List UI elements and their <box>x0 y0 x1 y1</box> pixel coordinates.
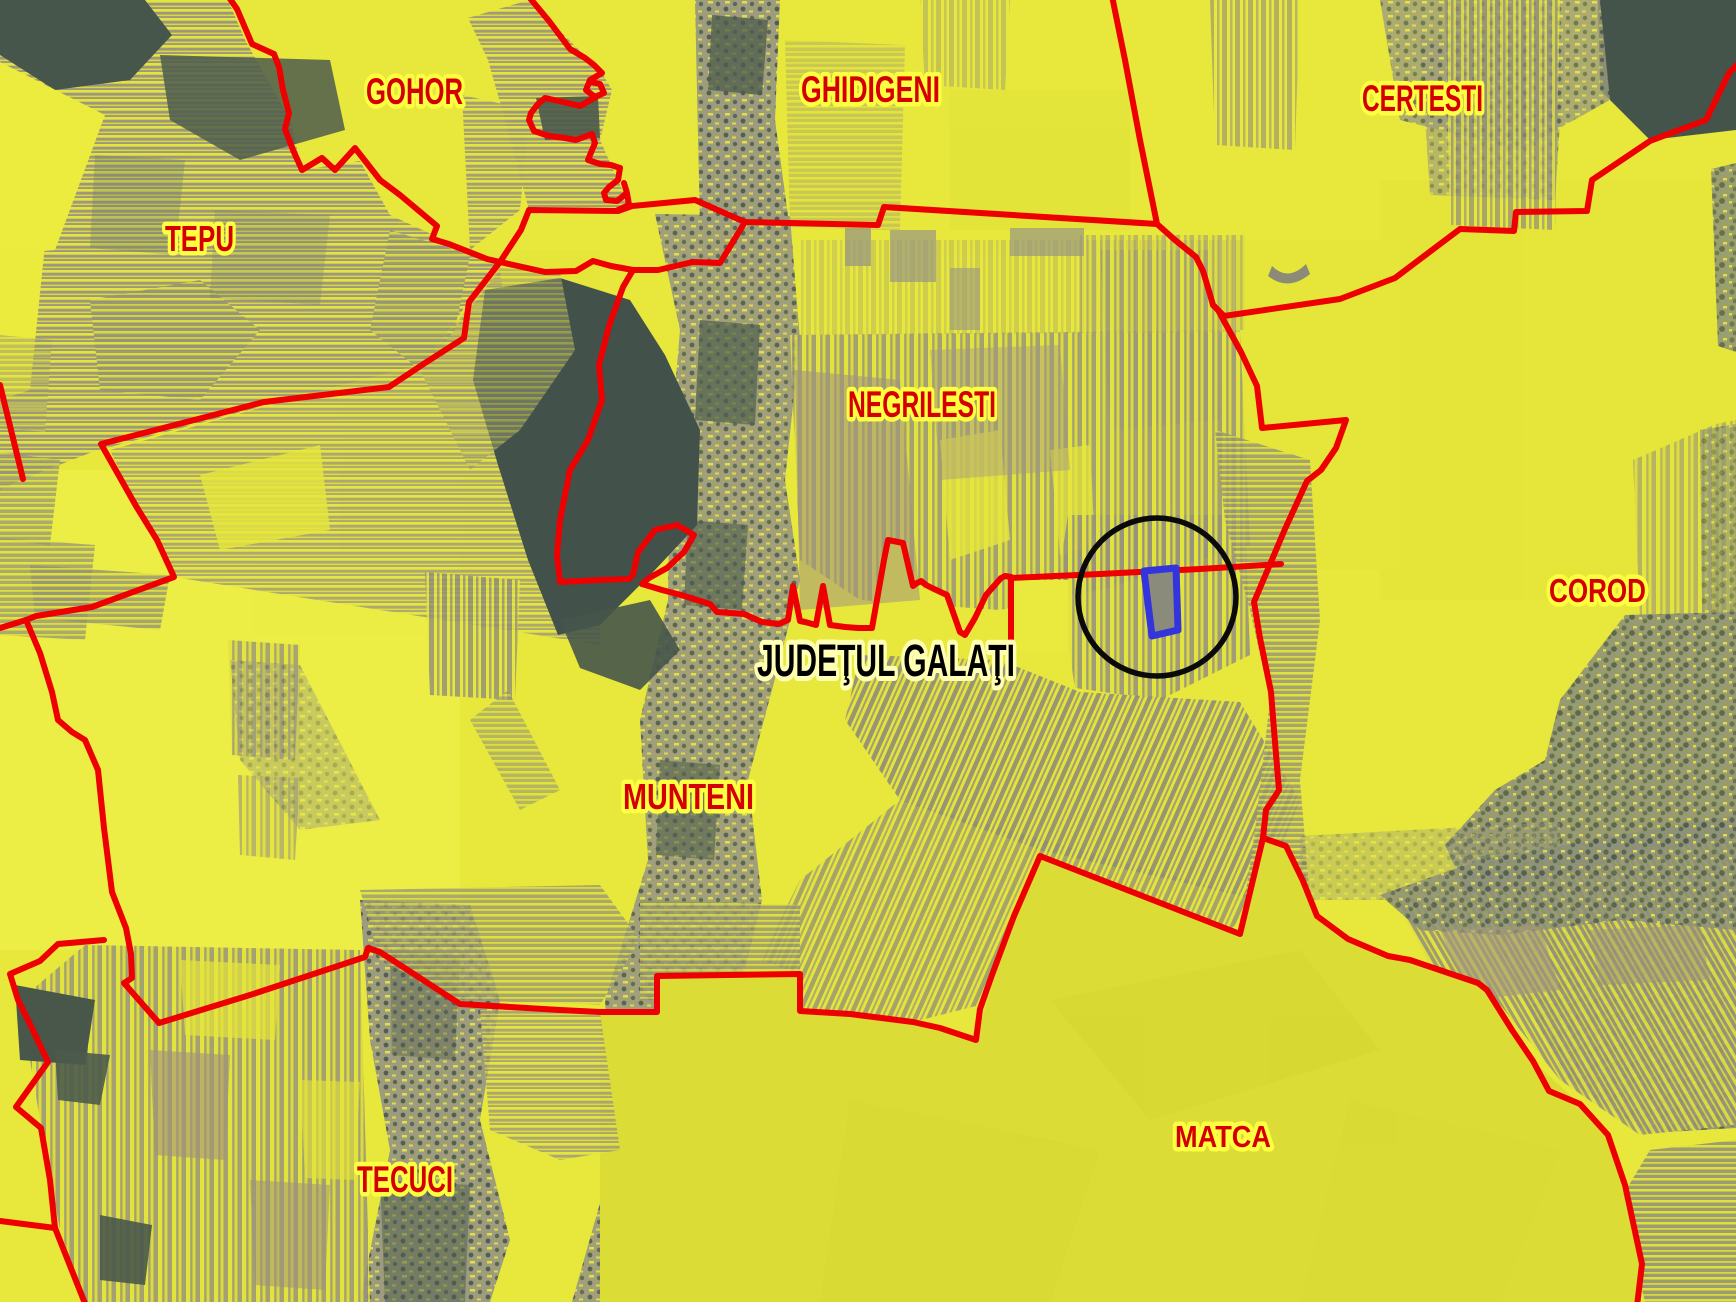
svg-text:TECUCI: TECUCI <box>357 1159 453 1200</box>
svg-text:GOHOR: GOHOR <box>366 71 463 112</box>
svg-text:COROD: COROD <box>1549 572 1646 609</box>
svg-text:GHIDIGENI: GHIDIGENI <box>801 69 940 110</box>
svg-text:JUDEŢUL GALAŢI: JUDEŢUL GALAŢI <box>757 635 1015 686</box>
svg-text:MATCA: MATCA <box>1175 1119 1271 1154</box>
svg-text:TEPU: TEPU <box>165 218 234 259</box>
svg-text:NEGRILESTI: NEGRILESTI <box>848 384 996 425</box>
svg-text:MUNTENI: MUNTENI <box>623 776 754 817</box>
svg-text:CERTESTI: CERTESTI <box>1362 78 1483 119</box>
